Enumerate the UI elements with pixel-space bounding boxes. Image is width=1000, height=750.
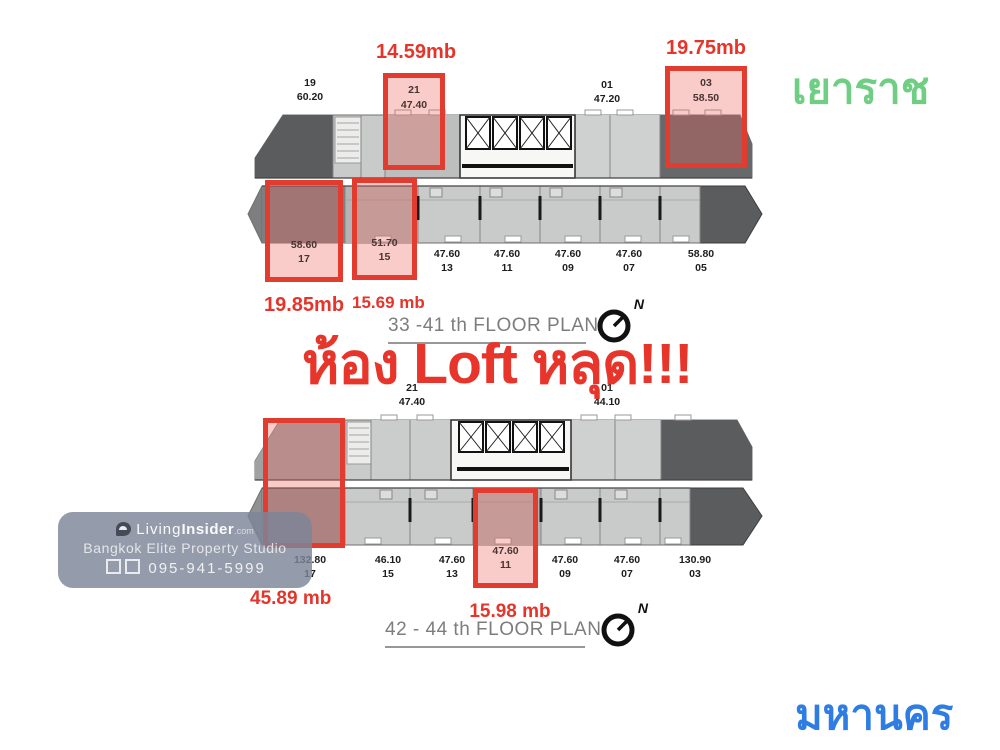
watermark-brand: LivingInsider.com (58, 521, 312, 538)
price-p2-unit11: 15.98 mb (460, 601, 560, 623)
unit-label-p2-07: 47.6007 (595, 553, 659, 581)
unit-label-p1-07: 47.6007 (597, 247, 661, 275)
unit-label-p1-05: 58.8005 (669, 247, 733, 275)
watermark: LivingInsider.com Bangkok Elite Property… (58, 512, 312, 588)
watermark-studio-line: Bangkok Elite Property Studio (58, 540, 312, 556)
district-label-top: เยาราช (792, 56, 929, 122)
price-p1-unit17: 19.85mb (264, 294, 344, 317)
plan2-title: 42 - 44 th FLOOR PLAN (385, 619, 585, 648)
unit-label-p2-09: 47.6009 (533, 553, 597, 581)
north-label-plan2: N (638, 600, 648, 616)
brand-second: Insider (182, 521, 235, 538)
unit-label-p2-15: 46.1015 (356, 553, 420, 581)
line-icon (106, 559, 121, 574)
brand-first: Living (136, 521, 181, 538)
watermark-phone-line: 095-941-5999 (58, 559, 312, 577)
livinginsider-logo-icon (116, 522, 131, 536)
watermark-phone: 095-941-5999 (148, 560, 265, 577)
price-p2-unit17: 45.89 mb (250, 588, 331, 610)
north-label-plan1: N (634, 296, 644, 312)
compass-icon-plan2: N (600, 602, 648, 648)
highlight-box-p1-unit03: 0358.50 (665, 66, 747, 168)
unit-label-p1-01: 0147.20 (575, 78, 639, 106)
price-p1-unit15: 15.69 mb (352, 293, 425, 313)
headline: ห้อง Loft หลุด!!! (238, 329, 756, 400)
highlight-box-p1-unit15: 51.7015 (352, 178, 417, 280)
highlight-box-p2-unit11: 47.6011 (473, 488, 538, 588)
price-p1-unit21: 14.59mb (376, 41, 452, 64)
highlight-box-p1-unit21: 2147.40 (383, 73, 445, 170)
unit-label-p1-09: 47.6009 (536, 247, 600, 275)
unit-label-p1-11: 47.6011 (475, 247, 539, 275)
plan2-elevator-core (451, 420, 571, 480)
plan1-elevator-core (460, 115, 575, 178)
unit-label-p1-13: 47.6013 (415, 247, 479, 275)
flyer-canvas: 1960.20 0147.20 47.6013 47.6011 47.6009 … (0, 0, 1000, 750)
unit-label-p2-03: 130.9003 (663, 553, 727, 581)
highlight-box-p1-unit17: 58.6017 (265, 180, 343, 282)
district-label-bottom: มหานคร (795, 682, 953, 748)
brand-tld: .com (234, 526, 254, 536)
unit-label-p1-19: 1960.20 (278, 76, 342, 104)
phone-icon (125, 559, 140, 574)
price-p1-unit03: 19.75mb (663, 37, 749, 60)
